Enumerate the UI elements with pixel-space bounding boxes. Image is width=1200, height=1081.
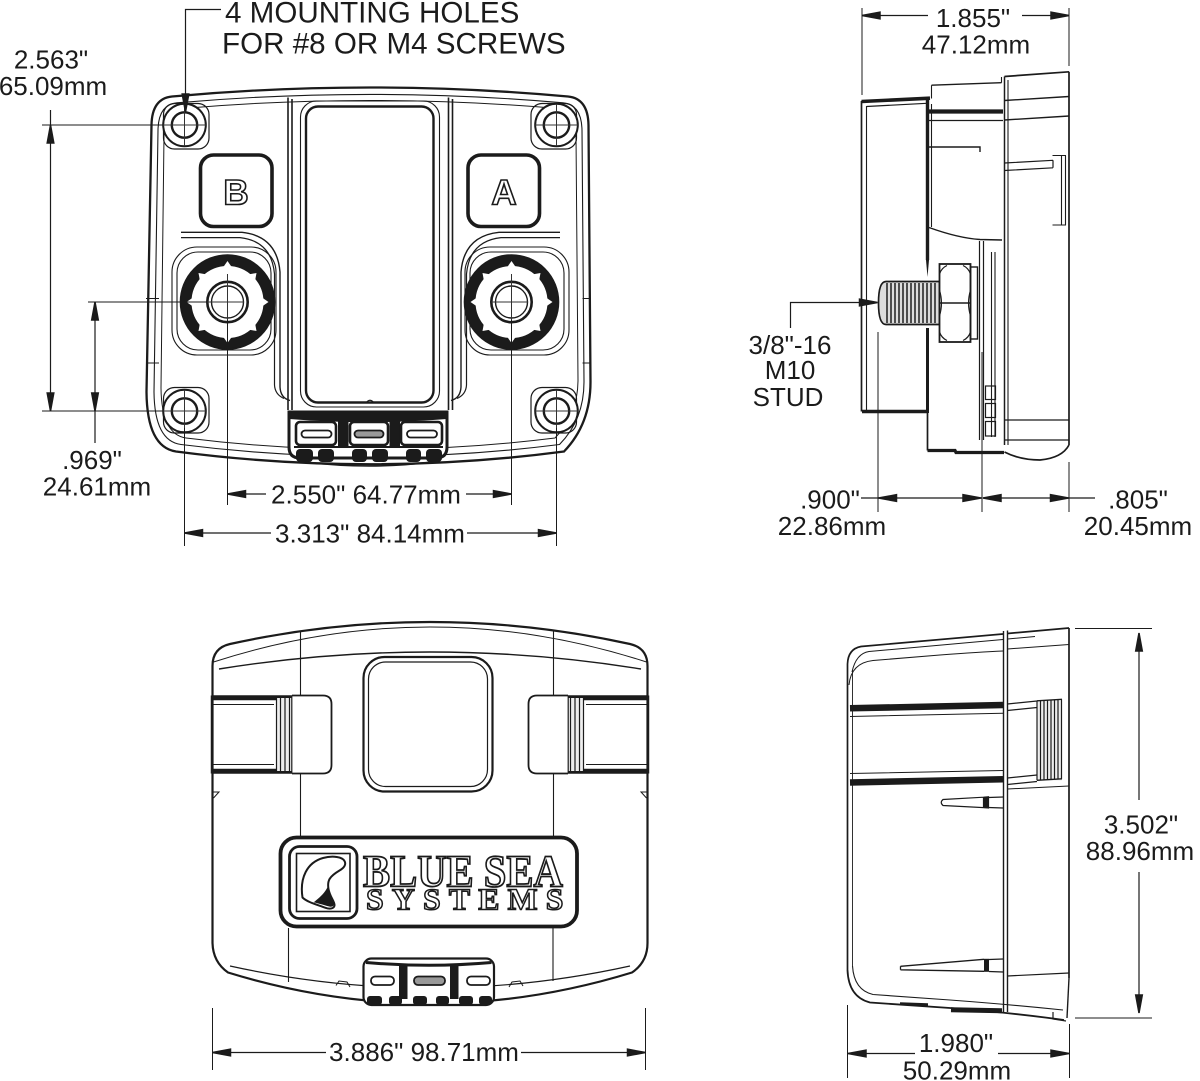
svg-text:2.550" 64.77mm: 2.550" 64.77mm xyxy=(271,480,461,510)
svg-text:3.886" 98.71mm: 3.886" 98.71mm xyxy=(329,1037,519,1067)
svg-text:3.502": 3.502" xyxy=(1104,810,1178,840)
svg-text:88.96mm: 88.96mm xyxy=(1086,836,1194,866)
svg-text:SYSTEMS: SYSTEMS xyxy=(366,882,572,917)
svg-text:3.313" 84.14mm: 3.313" 84.14mm xyxy=(275,519,465,549)
svg-text:A: A xyxy=(491,174,516,213)
svg-text:M10: M10 xyxy=(765,355,816,385)
svg-text:1.855": 1.855" xyxy=(936,3,1010,33)
svg-text:22.86mm: 22.86mm xyxy=(778,511,886,541)
svg-text:.900": .900" xyxy=(800,485,860,515)
svg-text:65.09mm: 65.09mm xyxy=(0,71,107,101)
svg-text:47.12mm: 47.12mm xyxy=(922,30,1030,60)
svg-text:B: B xyxy=(223,174,248,213)
svg-text:50.29mm: 50.29mm xyxy=(903,1056,1011,1081)
svg-text:20.45mm: 20.45mm xyxy=(1084,511,1192,541)
svg-text:.969": .969" xyxy=(62,445,122,475)
svg-text:FOR #8 OR M4 SCREWS: FOR #8 OR M4 SCREWS xyxy=(222,28,566,61)
svg-text:4 MOUNTING HOLES: 4 MOUNTING HOLES xyxy=(225,0,519,30)
svg-text:2.563": 2.563" xyxy=(14,45,88,75)
svg-text:.805": .805" xyxy=(1108,485,1168,515)
svg-text:24.61mm: 24.61mm xyxy=(43,472,151,502)
svg-text:1.980": 1.980" xyxy=(919,1028,993,1058)
svg-text:STUD: STUD xyxy=(753,382,824,412)
